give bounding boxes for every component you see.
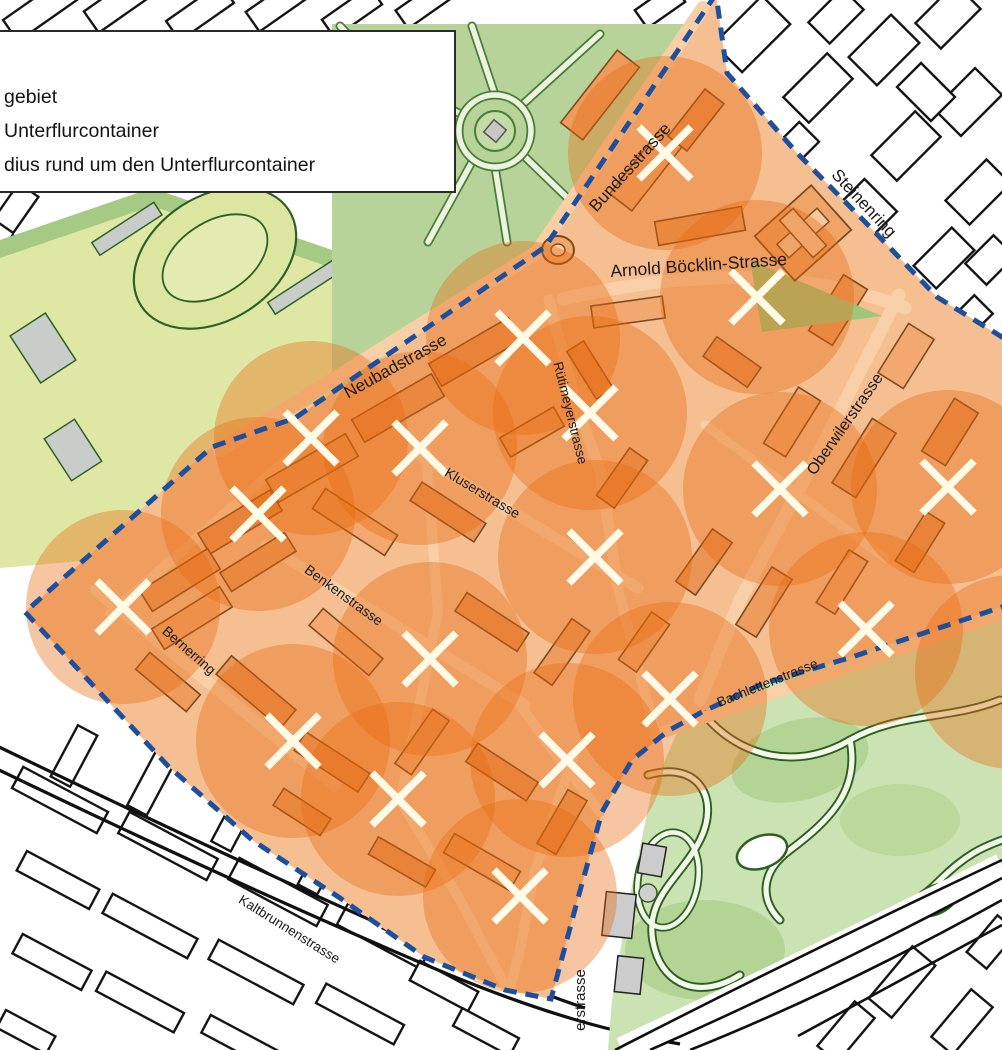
legend: gebiet Unterflurcontainer dius rund um d…	[0, 30, 456, 193]
building-outline	[96, 972, 184, 1033]
legend-item-area: gebiet	[4, 86, 57, 109]
building-outline	[783, 53, 852, 122]
building-outline	[201, 1015, 286, 1050]
building-outline	[808, 0, 863, 44]
building-outline	[17, 851, 100, 909]
map-screenshot: BundesstrasseSteinenringArnold Böcklin-S…	[0, 0, 1002, 1050]
building-outline	[0, 1010, 55, 1050]
building-outline	[945, 159, 1002, 224]
street-label-erstrasse: erstrasse	[572, 969, 589, 1031]
legend-item-radius: dius rund um den Unterflurcontainer	[4, 154, 315, 177]
legend-item-container: Unterflurcontainer	[4, 120, 159, 143]
building-outline	[246, 0, 311, 32]
building-outline	[51, 725, 98, 787]
building-outline	[12, 934, 91, 990]
building-outline	[453, 1008, 519, 1050]
building-outline	[915, 0, 980, 49]
building-outline	[965, 235, 1002, 284]
building-outline	[102, 894, 197, 958]
building-outline	[84, 0, 156, 33]
building-outline	[635, 0, 685, 28]
building-outline	[208, 940, 303, 1004]
building-outline	[316, 984, 404, 1045]
building-outline	[869, 946, 936, 1017]
building-outline	[931, 989, 992, 1050]
building-outline	[118, 812, 218, 880]
